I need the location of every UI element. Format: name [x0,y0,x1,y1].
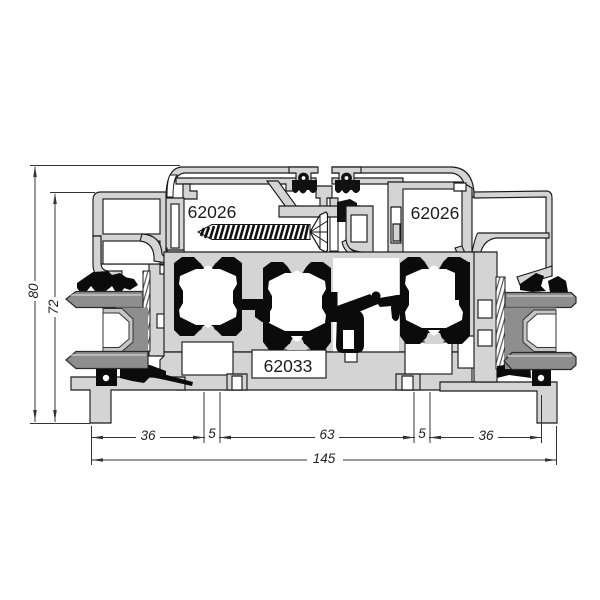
svg-text:62026: 62026 [188,202,237,222]
svg-text:36: 36 [478,428,494,443]
svg-text:62026: 62026 [411,203,460,223]
svg-text:36: 36 [140,428,156,443]
svg-text:63: 63 [319,427,335,442]
svg-text:145: 145 [313,451,336,466]
svg-text:5: 5 [208,426,216,441]
svg-text:5: 5 [418,426,426,441]
svg-text:80: 80 [26,283,41,299]
svg-text:62033: 62033 [264,356,313,376]
svg-text:72: 72 [46,299,61,315]
